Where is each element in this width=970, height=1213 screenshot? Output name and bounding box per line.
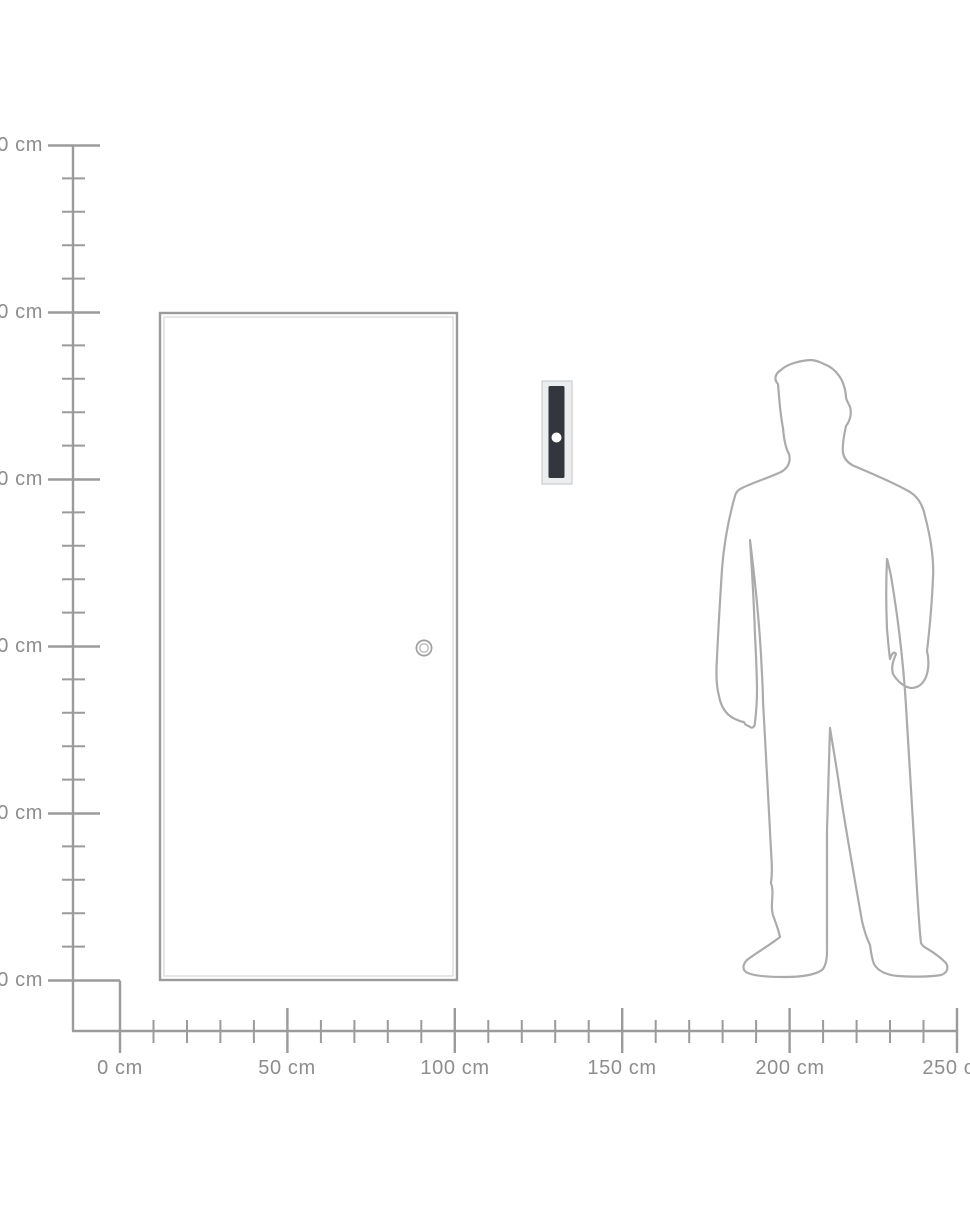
- product-button: [552, 433, 562, 443]
- h-ruler-label-0: 0 cm: [60, 1056, 180, 1080]
- h-ruler-label-100: 100 cm: [395, 1056, 515, 1080]
- horizontal-ruler-major-ticks: [120, 981, 957, 1054]
- person-silhouette: [716, 360, 947, 977]
- v-ruler-label-150: 150 cm: [0, 467, 43, 491]
- v-ruler-label-0: 0 cm: [0, 968, 43, 992]
- diagram-graphics: [0, 0, 970, 1213]
- v-ruler-label-200: 200 cm: [0, 300, 43, 324]
- v-ruler-label-250: 250 cm: [0, 133, 43, 157]
- size-guide-diagram: 250 cm 200 cm 150 cm 100 cm 50 cm 0 cm 0…: [0, 0, 970, 1213]
- v-ruler-label-100: 100 cm: [0, 634, 43, 658]
- h-ruler-label-200: 200 cm: [730, 1056, 850, 1080]
- product-bar: [549, 386, 565, 478]
- vertical-ruler-major-ticks: [48, 146, 120, 981]
- v-ruler-label-50: 50 cm: [0, 801, 43, 825]
- door-outline: [160, 313, 457, 980]
- product-figure: [542, 381, 572, 484]
- h-ruler-label-150: 150 cm: [562, 1056, 682, 1080]
- h-ruler-label-50: 50 cm: [227, 1056, 347, 1080]
- door-figure: [160, 313, 457, 980]
- h-ruler-label-250: 250 cm: [897, 1056, 970, 1080]
